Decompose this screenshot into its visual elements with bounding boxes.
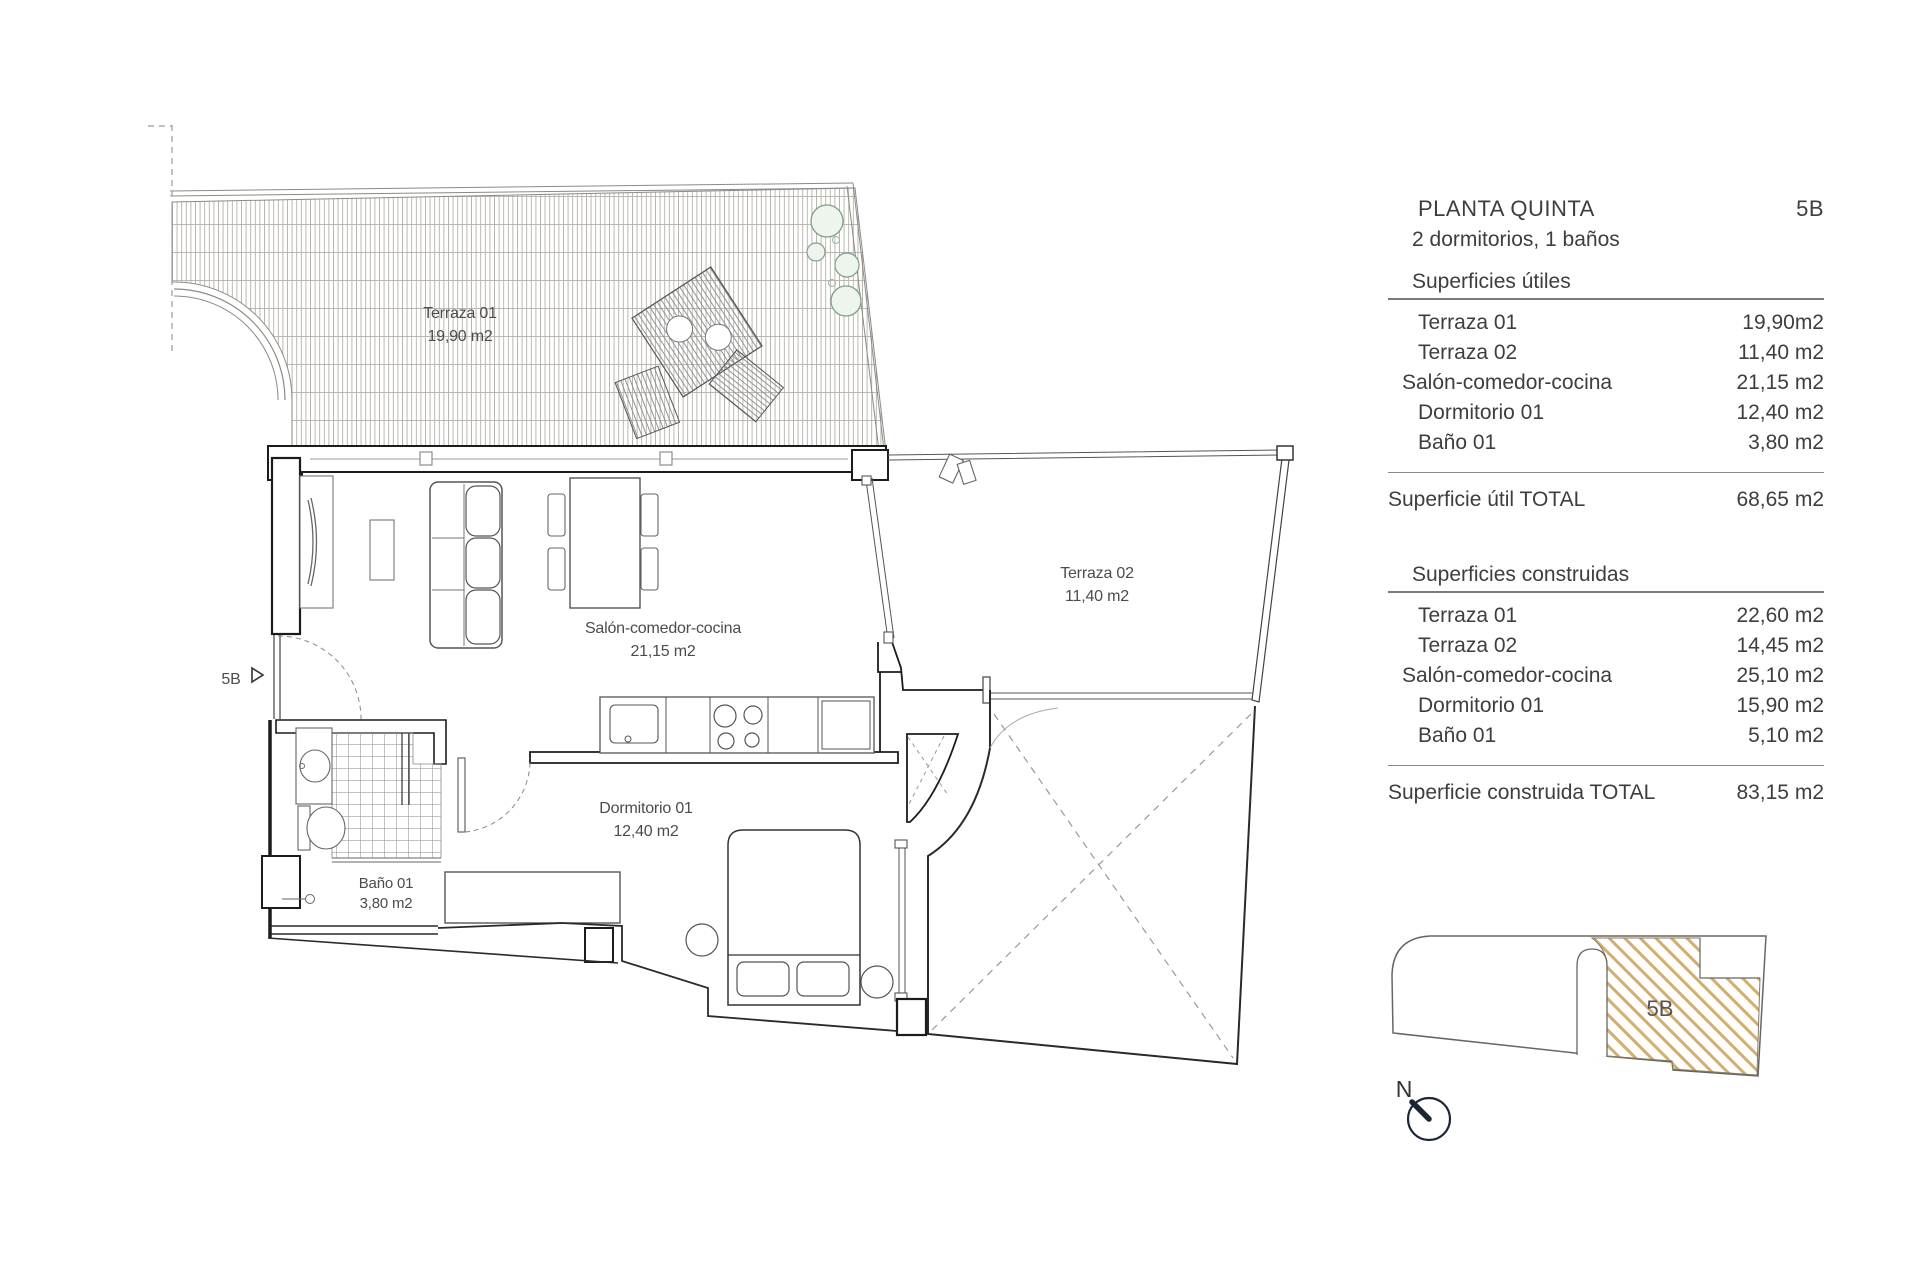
table-row: Baño 01 5,10 m2 <box>1388 721 1824 751</box>
room-label-terraza01-name: Terraza 01 <box>423 305 497 322</box>
nightstand <box>861 966 893 998</box>
room-label-terraza02-area: 11,40 m2 <box>1065 588 1129 605</box>
page: { "plan": { "entrance_marker": "5B", "la… <box>0 0 1920 1280</box>
entrance-arrow-icon <box>252 668 263 682</box>
useful-total-row: Superficie útil TOTAL 68,65 m2 <box>1388 483 1824 517</box>
built-areas-rows: Terraza 01 22,60 m2 Terraza 02 14,45 m2 … <box>1388 593 1824 751</box>
corner-column <box>897 999 926 1035</box>
panel-unit-badge: 5B <box>1796 196 1824 222</box>
bedroom-door-leaf <box>458 758 465 832</box>
table-row: Terraza 01 19,90m2 <box>1388 308 1824 338</box>
drain-symbol <box>306 895 315 904</box>
room-label-dormitorio-name: Dormitorio 01 <box>599 800 693 817</box>
room-label-terraza02-name: Terraza 02 <box>1060 565 1134 582</box>
table-row: Dormitorio 01 12,40 m2 <box>1388 398 1824 428</box>
room-label-salon-area: 21,15 m2 <box>630 643 695 660</box>
room-label-salon-name: Salón-comedor-cocina <box>585 620 741 637</box>
toilet-bowl <box>307 807 345 849</box>
pillow <box>737 962 789 996</box>
panel-subtitle: 2 dormitorios, 1 baños <box>1388 228 1824 252</box>
wardrobe <box>445 872 620 923</box>
room-label-dormitorio-area: 12,40 m2 <box>613 823 678 840</box>
rule <box>1388 472 1824 473</box>
table-row: Terraza 02 14,45 m2 <box>1388 631 1824 661</box>
north-label: N <box>1396 1076 1413 1102</box>
rule <box>1388 765 1824 766</box>
built-total-row: Superficie construida TOTAL 83,15 m2 <box>1388 776 1824 810</box>
terraza-01-deck <box>148 125 886 452</box>
table-row: Terraza 02 11,40 m2 <box>1388 338 1824 368</box>
entrance: 5B <box>221 636 361 719</box>
built-areas-heading: Superficies construidas <box>1388 563 1824 587</box>
table-row: Salón-comedor-cocina 25,10 m2 <box>1388 661 1824 691</box>
adjacent-roof-region <box>908 690 1255 1064</box>
pillow <box>797 962 849 996</box>
locator-plan: 5B <box>1392 936 1766 1076</box>
table-row: Dormitorio 01 15,90 m2 <box>1388 691 1824 721</box>
nightstand <box>686 924 718 956</box>
entrance-unit-label: 5B <box>221 671 240 688</box>
facade-column <box>585 928 613 962</box>
area-summary-panel: PLANTA QUINTA 5B 2 dormitorios, 1 baños … <box>1388 196 1824 810</box>
table-row: Baño 01 3,80 m2 <box>1388 428 1824 458</box>
useful-areas-heading: Superficies útiles <box>1388 270 1824 294</box>
locator-unit-label: 5B <box>1647 996 1674 1021</box>
kitchen-counter <box>600 697 874 753</box>
room-label-bano-area: 3,80 m2 <box>360 895 413 912</box>
panel-title: PLANTA QUINTA <box>1388 196 1595 222</box>
table-row: Terraza 01 22,60 m2 <box>1388 601 1824 631</box>
table-row: Salón-comedor-cocina 21,15 m2 <box>1388 368 1824 398</box>
room-label-terraza01-area: 19,90 m2 <box>427 328 492 345</box>
glass-partition <box>862 476 894 643</box>
useful-areas-rows: Terraza 01 19,90m2 Terraza 02 11,40 m2 S… <box>1388 300 1824 458</box>
north-arrow-icon: N <box>1396 1076 1450 1140</box>
room-label-bano-name: Baño 01 <box>359 875 413 892</box>
